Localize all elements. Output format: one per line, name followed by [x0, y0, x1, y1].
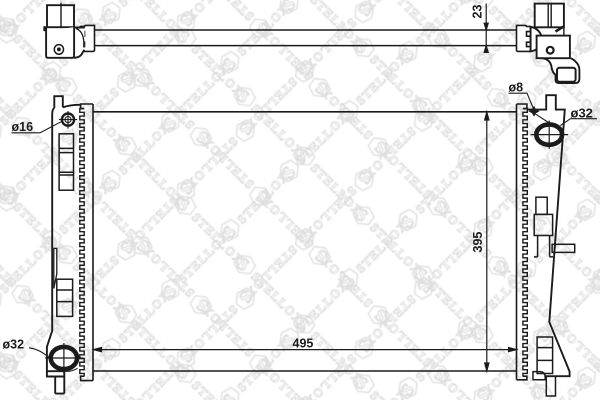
- svg-text:395: 395: [471, 232, 485, 253]
- svg-text:ø32: ø32: [571, 105, 593, 120]
- svg-text:23: 23: [471, 5, 485, 19]
- svg-text:ø32: ø32: [3, 338, 25, 352]
- svg-text:495: 495: [293, 336, 314, 350]
- svg-text:ø16: ø16: [12, 120, 34, 134]
- svg-text:ø8: ø8: [509, 81, 524, 95]
